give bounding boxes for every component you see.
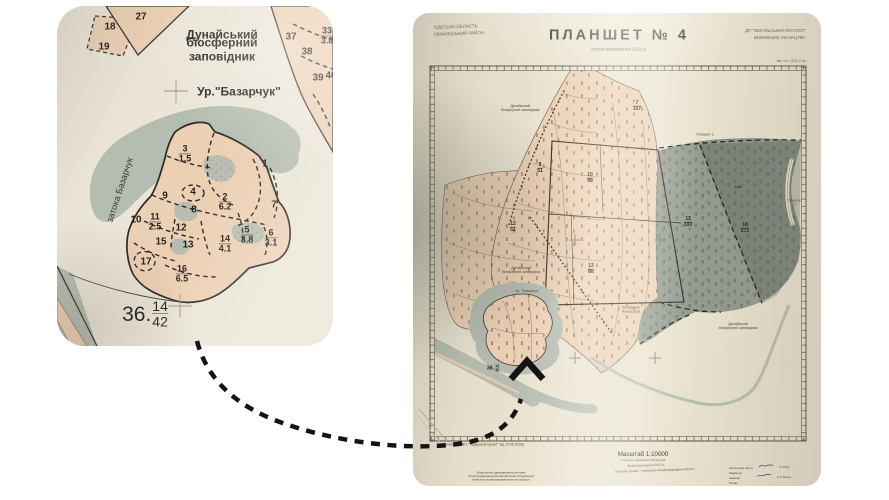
bazarchuk-island bbox=[469, 282, 563, 374]
page: 181927Дунайськийбіосферний заповідник373… bbox=[0, 0, 889, 500]
inset-photo: 181927Дунайськийбіосферний заповідник373… bbox=[57, 6, 333, 346]
plansheet-map-graphic bbox=[413, 13, 821, 486]
inset-map-graphic bbox=[57, 6, 333, 346]
signature-squiggles bbox=[757, 465, 773, 477]
plansheet-photo: ПЛАНШЕТ № 4 лісовпорядкування 2012 р. ОД… bbox=[413, 13, 821, 486]
map-content bbox=[417, 62, 801, 409]
